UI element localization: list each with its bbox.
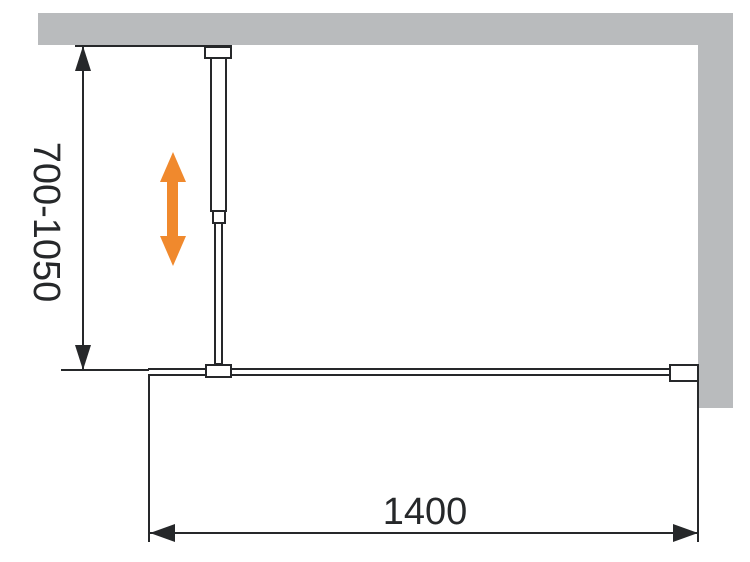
wall-profile-bracket: [669, 364, 699, 382]
arrowhead-left-icon: [150, 524, 175, 542]
arrowhead-up-icon: [75, 46, 91, 71]
height-adjust-arrow-down-icon: [160, 236, 186, 266]
height-dimension-label: 700-1050: [27, 142, 65, 303]
ceiling-bracket: [204, 46, 232, 59]
support-rod-outer-tube: [210, 57, 227, 212]
height-adjust-arrow-up-icon: [160, 152, 186, 182]
width-dimension-label: 1400: [383, 493, 468, 531]
arrowhead-right-icon: [673, 524, 698, 542]
vertical-dimension-line: [82, 46, 84, 370]
wall-top: [38, 13, 733, 45]
arrowhead-down-icon: [75, 345, 91, 370]
support-rod-inner-tube: [214, 222, 223, 365]
wall-right: [698, 45, 733, 408]
extension-line-glass-left: [61, 369, 149, 371]
glass-clamp-bracket: [205, 364, 232, 378]
extension-line-width-left: [148, 376, 150, 542]
extension-line-width-right: [697, 382, 699, 542]
shower-screen-technical-drawing: 700-1050 1400: [0, 0, 750, 562]
height-adjust-arrow-shaft-icon: [167, 180, 178, 238]
